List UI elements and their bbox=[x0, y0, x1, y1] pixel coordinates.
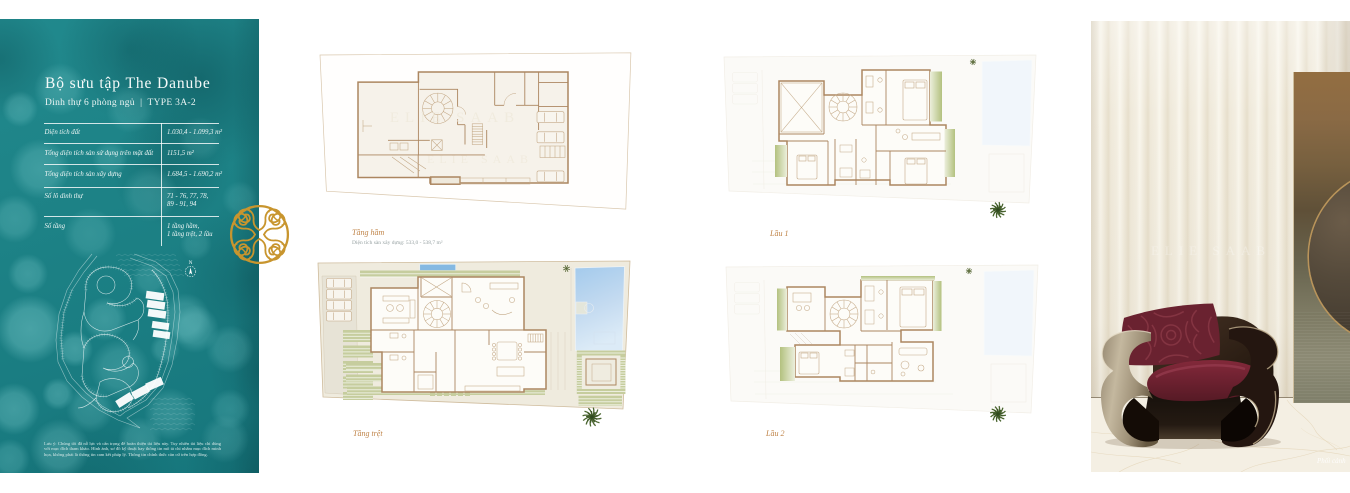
svg-text:ELIE SAAB: ELIE SAAB bbox=[427, 152, 533, 166]
svg-text:N: N bbox=[189, 261, 193, 266]
svg-text:ELIE SAAB: ELIE SAAB bbox=[390, 110, 520, 126]
